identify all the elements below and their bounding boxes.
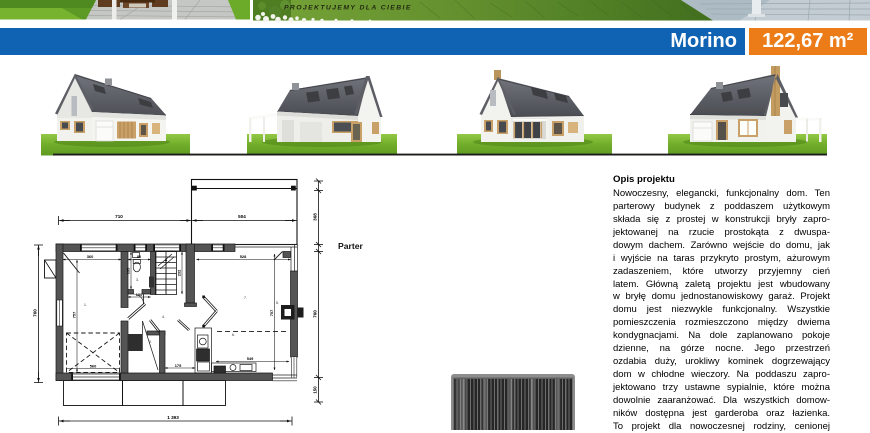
- svg-text:4.: 4.: [162, 315, 165, 319]
- svg-text:232: 232: [177, 269, 182, 276]
- svg-text:549: 549: [247, 356, 254, 361]
- svg-text:Parter: Parter: [338, 241, 363, 251]
- svg-text:150: 150: [313, 386, 318, 394]
- svg-text:760: 760: [313, 310, 318, 318]
- svg-text:504: 504: [238, 214, 246, 219]
- svg-text:757: 757: [72, 312, 77, 319]
- svg-text:1 393: 1 393: [167, 415, 179, 420]
- svg-text:360: 360: [87, 254, 94, 259]
- svg-text:528: 528: [240, 254, 247, 259]
- svg-text:757: 757: [269, 310, 274, 317]
- svg-text:560: 560: [90, 364, 97, 369]
- svg-text:1.: 1.: [84, 303, 87, 307]
- svg-text:7.: 7.: [244, 296, 247, 300]
- svg-text:80: 80: [137, 254, 141, 259]
- svg-text:710: 710: [115, 214, 123, 219]
- svg-text:135: 135: [126, 267, 131, 274]
- svg-text:180: 180: [136, 292, 143, 297]
- svg-text:2.: 2.: [149, 340, 152, 344]
- svg-text:760: 760: [33, 309, 38, 317]
- svg-text:175: 175: [175, 363, 182, 368]
- svg-text:6.: 6.: [232, 333, 235, 337]
- svg-text:PROJEKTUJEMY DLA CIEBIE: PROJEKTUJEMY DLA CIEBIE: [284, 5, 412, 12]
- svg-text:3.: 3.: [136, 278, 139, 282]
- svg-text:5.: 5.: [276, 301, 279, 305]
- svg-text:368: 368: [313, 213, 318, 221]
